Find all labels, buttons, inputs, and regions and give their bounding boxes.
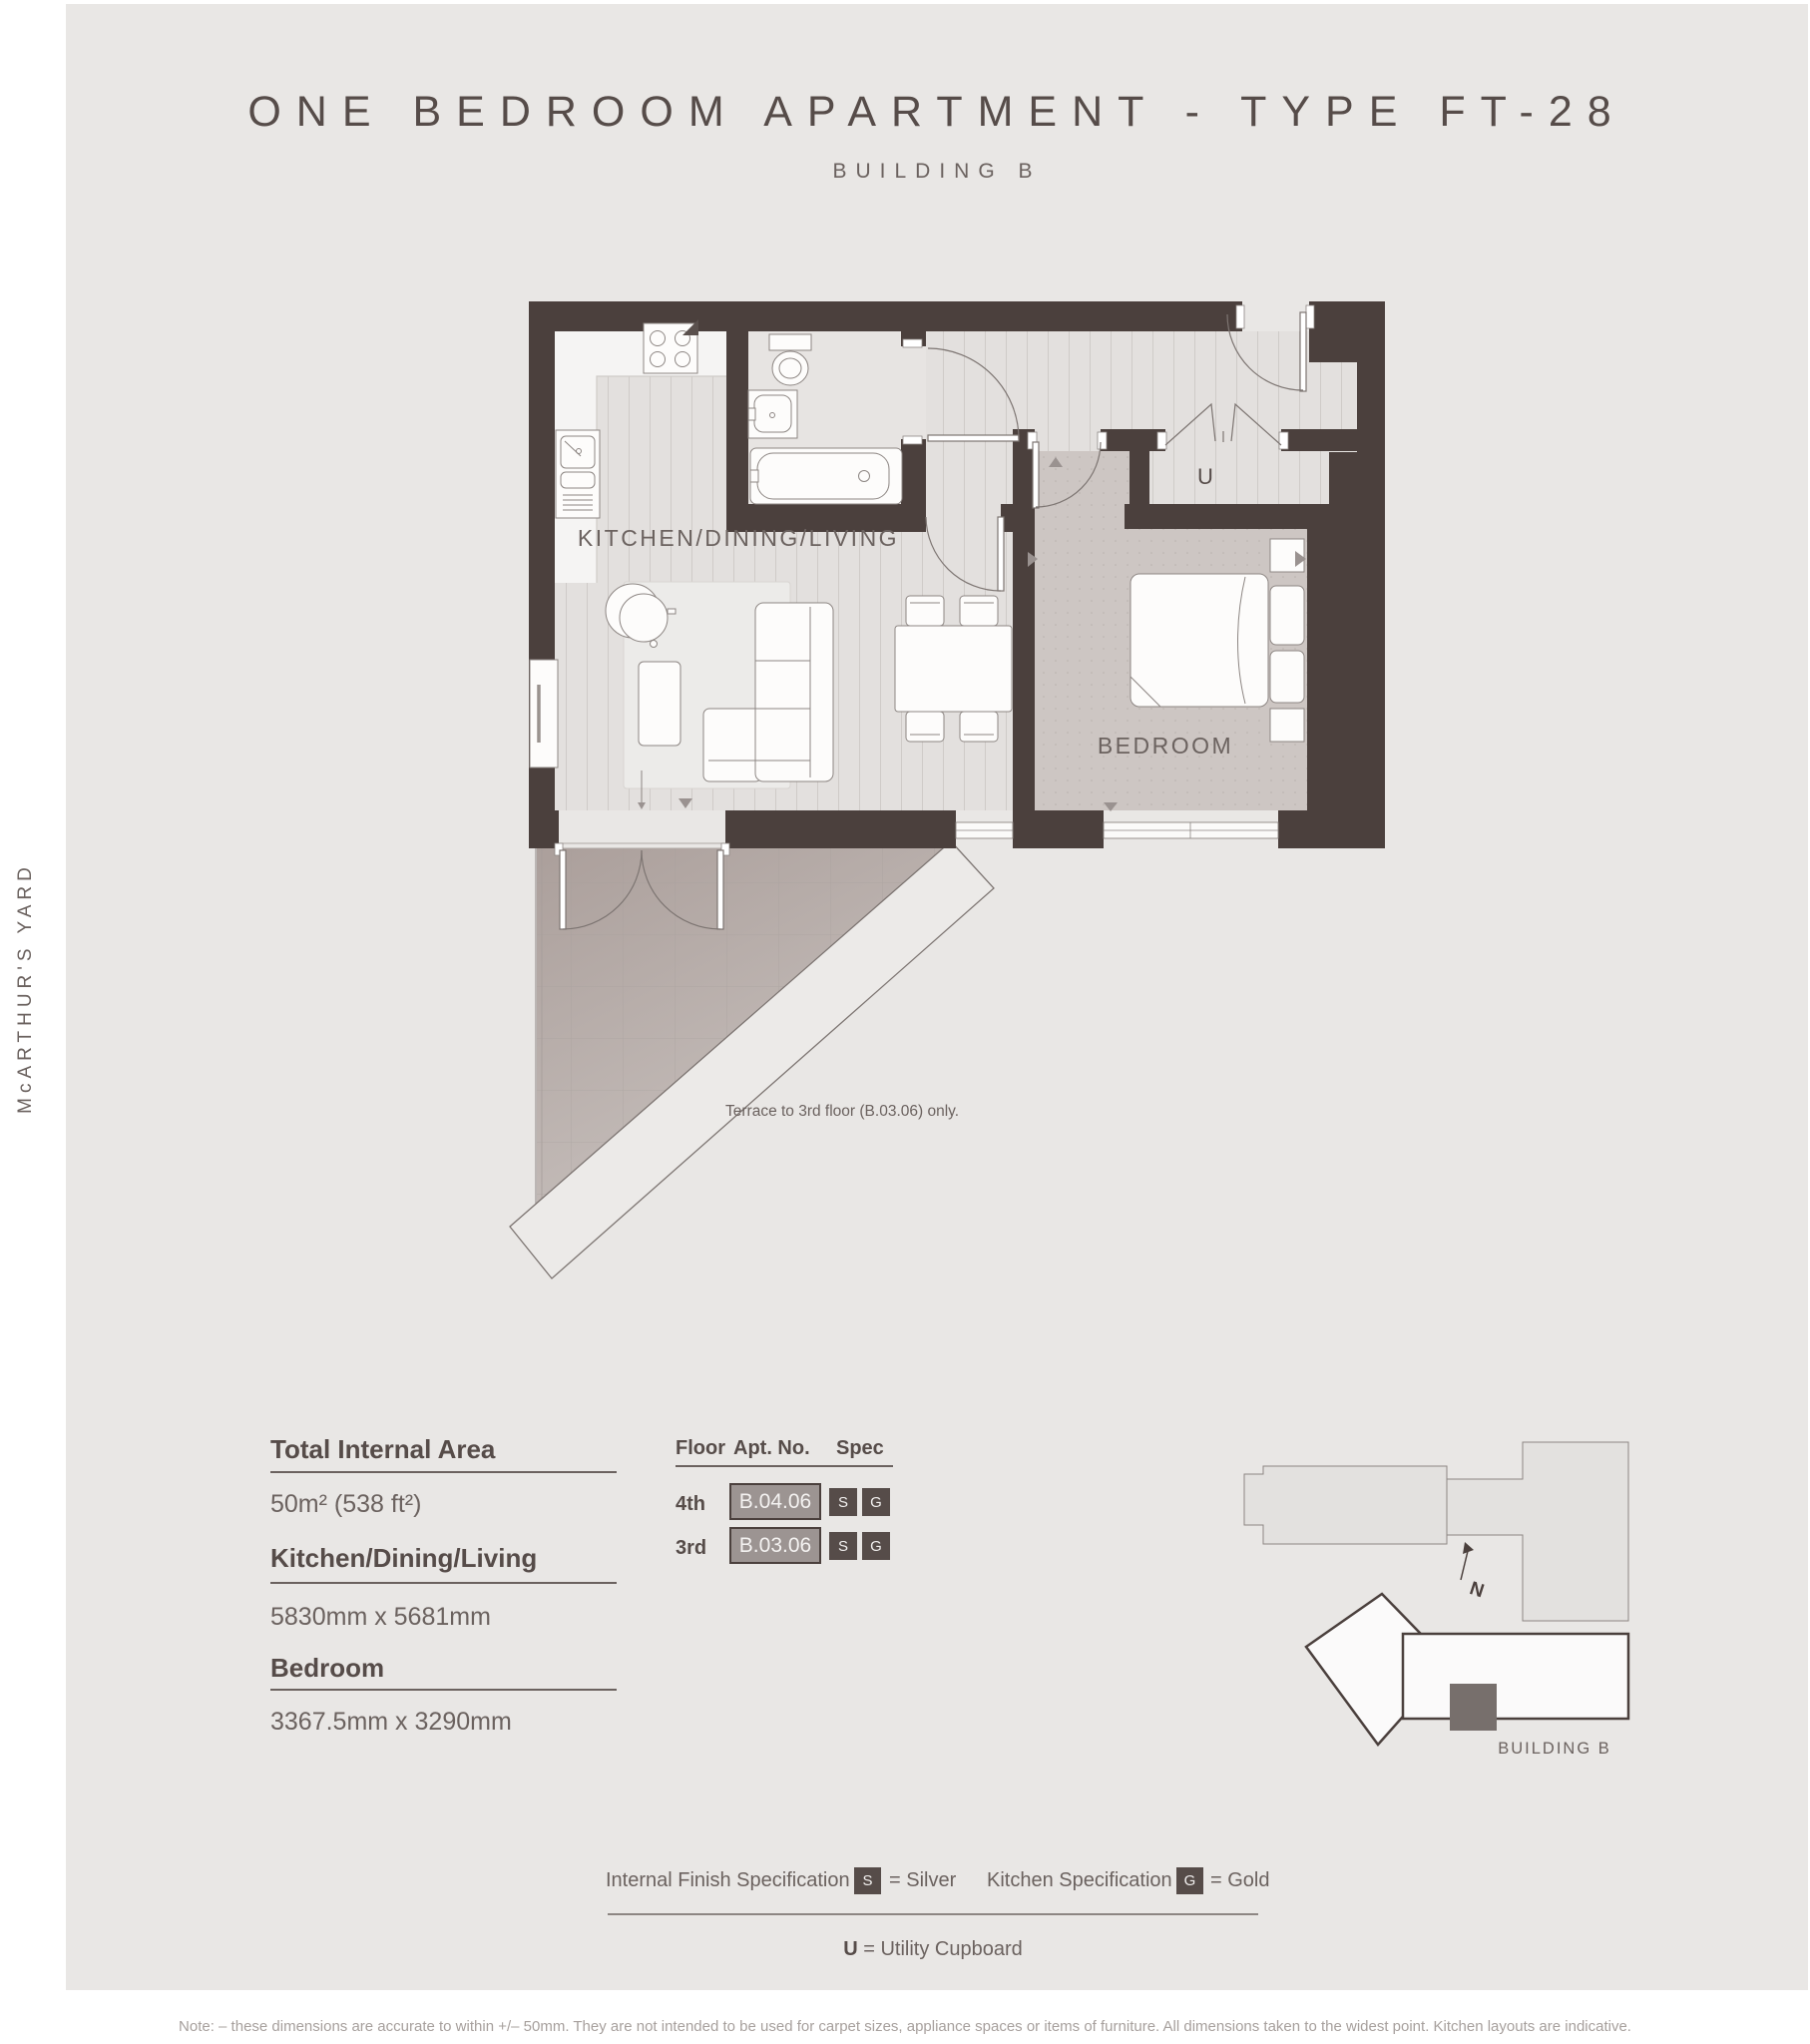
bedroom-label: BEDROOM: [1098, 733, 1233, 759]
legend-badge-silver: S: [854, 1867, 881, 1894]
dining-chair: [960, 712, 998, 742]
page-title: ONE BEDROOM APARTMENT - TYPE FT-28: [66, 88, 1808, 137]
table-row-floor: 4th: [676, 1494, 705, 1514]
kitchen-sink: [556, 430, 600, 518]
legend-badge-gold: G: [1176, 1867, 1203, 1894]
utility-label: U: [1197, 464, 1213, 489]
legend-divider: [608, 1913, 1258, 1915]
col-header-spec: Spec: [836, 1438, 884, 1458]
terrace: [510, 841, 994, 1278]
double-bed: [1131, 574, 1304, 707]
coffee-table: [639, 662, 680, 746]
spec-letter: S: [838, 1494, 848, 1511]
spec-letter: G: [1184, 1872, 1196, 1889]
table-row-floor: 3rd: [676, 1538, 706, 1558]
dining-table: [895, 626, 1012, 712]
spec-letter: G: [870, 1494, 882, 1511]
apt-number-badge: B.04.06: [729, 1483, 821, 1520]
apt-number: B.03.06: [739, 1534, 811, 1558]
spec-letter: S: [862, 1872, 872, 1889]
tv-unit: [530, 660, 558, 767]
basin: [748, 390, 797, 438]
building-b-bar: [1403, 1634, 1628, 1719]
spec-badge-gold: G: [862, 1488, 890, 1516]
divider: [270, 1582, 617, 1584]
living-room-label: KITCHEN/DINING/LIVING: [578, 525, 899, 551]
hob: [644, 319, 698, 373]
neighbor-building-west: [1244, 1466, 1447, 1544]
footer-note: Note: – these dimensions are accurate to…: [0, 2018, 1810, 2035]
pillow: [1270, 651, 1304, 703]
bedside-table: [1270, 709, 1304, 742]
spec-badge-silver: S: [829, 1532, 857, 1560]
apt-number: B.04.06: [739, 1490, 811, 1514]
apartment-location-marker: [1450, 1684, 1497, 1731]
kitchen-spec-value: = Gold: [1210, 1867, 1269, 1894]
kitchen-spec-label: Kitchen Specification: [987, 1867, 1172, 1894]
bedroom-heading: Bedroom: [270, 1655, 384, 1681]
apt-number-badge: B.03.06: [729, 1527, 821, 1564]
building-b-label: BUILDING B: [1498, 1740, 1611, 1758]
utility-note-key: U: [843, 1938, 857, 1960]
col-header-apt: Apt. No.: [733, 1438, 810, 1458]
spec-letter: S: [838, 1538, 848, 1555]
kdl-heading: Kitchen/Dining/Living: [270, 1545, 537, 1571]
north-arrow-icon: N: [1461, 1542, 1487, 1602]
spec-badge-silver: S: [829, 1488, 857, 1516]
dining-chair: [960, 596, 998, 626]
page-subtitle: BUILDING B: [66, 160, 1808, 184]
toilet: [769, 334, 811, 385]
pillow: [1270, 586, 1304, 645]
divider: [270, 1689, 617, 1691]
finish-spec-value: = Silver: [889, 1867, 956, 1894]
floor-plan: KITCHEN/DINING/LIVING BEDROOM U Terrace …: [499, 279, 1417, 1317]
utility-note-value: = Utility Cupboard: [863, 1938, 1023, 1960]
col-header-floor: Floor: [676, 1438, 725, 1458]
spec-badge-gold: G: [862, 1532, 890, 1560]
utility-floor: [1149, 442, 1329, 504]
dining-chair: [906, 596, 944, 626]
divider: [676, 1465, 893, 1467]
divider: [270, 1471, 617, 1473]
bathtub: [750, 448, 902, 504]
finish-spec-label: Internal Finish Specification: [606, 1867, 850, 1894]
total-area-value: 50m² (538 ft²): [270, 1492, 421, 1517]
spec-letter: G: [870, 1538, 882, 1555]
bedroom-value: 3367.5mm x 3290mm: [270, 1710, 512, 1735]
development-name-vertical: McARTHUR'S YARD: [15, 862, 37, 1114]
north-label: N: [1467, 1578, 1487, 1602]
dining-chair: [906, 712, 944, 742]
brochure-page: ONE BEDROOM APARTMENT - TYPE FT-28 BUILD…: [0, 0, 1810, 2044]
terrace-note: Terrace to 3rd floor (B.03.06) only.: [725, 1103, 959, 1120]
kdl-value: 5830mm x 5681mm: [270, 1605, 491, 1630]
utility-note: U = Utility Cupboard: [608, 1938, 1258, 1961]
site-map: N BUILDING B: [1237, 1417, 1666, 1767]
total-area-heading: Total Internal Area: [270, 1436, 495, 1462]
